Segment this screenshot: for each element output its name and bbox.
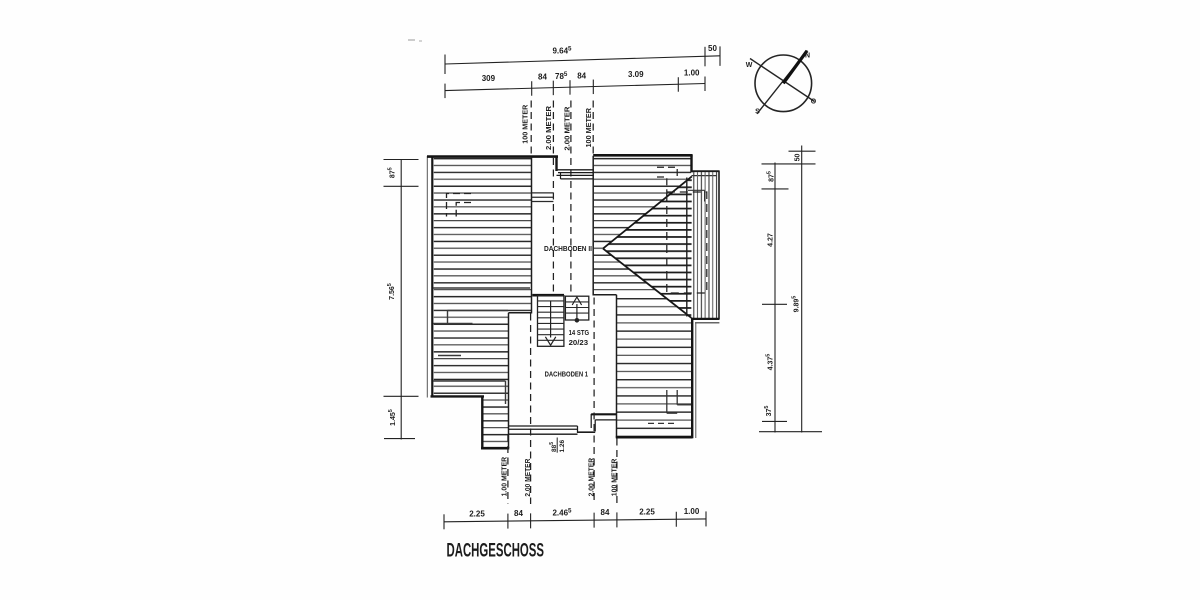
- svg-text:4.27: 4.27: [768, 233, 775, 247]
- svg-text:84: 84: [538, 72, 547, 81]
- svg-text:1.00: 1.00: [684, 68, 700, 77]
- svg-text:DACHGESCHOSS: DACHGESCHOSS: [447, 541, 544, 562]
- svg-text:50: 50: [708, 44, 717, 53]
- svg-text:W: W: [746, 62, 753, 69]
- svg-text:2.00 METER: 2.00 METER: [587, 458, 595, 497]
- svg-text:DACHBODEN 1: DACHBODEN 1: [545, 370, 589, 379]
- svg-text:50: 50: [795, 154, 802, 162]
- svg-text:309: 309: [482, 74, 496, 83]
- svg-text:100 METER: 100 METER: [522, 105, 530, 144]
- svg-text:84: 84: [514, 509, 523, 518]
- svg-text:3.09: 3.09: [628, 70, 644, 79]
- svg-text:2.00 METER: 2.00 METER: [545, 106, 553, 150]
- svg-text:100 METER: 100 METER: [610, 459, 618, 497]
- svg-text:2.00 METER: 2.00 METER: [563, 107, 571, 151]
- svg-text:2.25: 2.25: [639, 508, 655, 517]
- svg-text:2.00 METER: 2.00 METER: [524, 459, 532, 497]
- svg-text:20/23: 20/23: [569, 338, 589, 347]
- svg-text:2.25: 2.25: [469, 509, 485, 518]
- svg-text:O: O: [811, 99, 817, 106]
- svg-text:1.00: 1.00: [684, 507, 700, 516]
- svg-text:84: 84: [577, 71, 586, 80]
- svg-text:100 METER: 100 METER: [585, 108, 593, 148]
- svg-text:1.26: 1.26: [559, 439, 566, 452]
- svg-text:S: S: [755, 109, 760, 116]
- svg-text:1.00 METER: 1.00 METER: [501, 457, 509, 497]
- svg-text:DACHBODEN II: DACHBODEN II: [544, 244, 592, 253]
- svg-text:84: 84: [601, 508, 610, 517]
- svg-text:N: N: [805, 53, 810, 60]
- svg-text:14 STG: 14 STG: [569, 328, 590, 337]
